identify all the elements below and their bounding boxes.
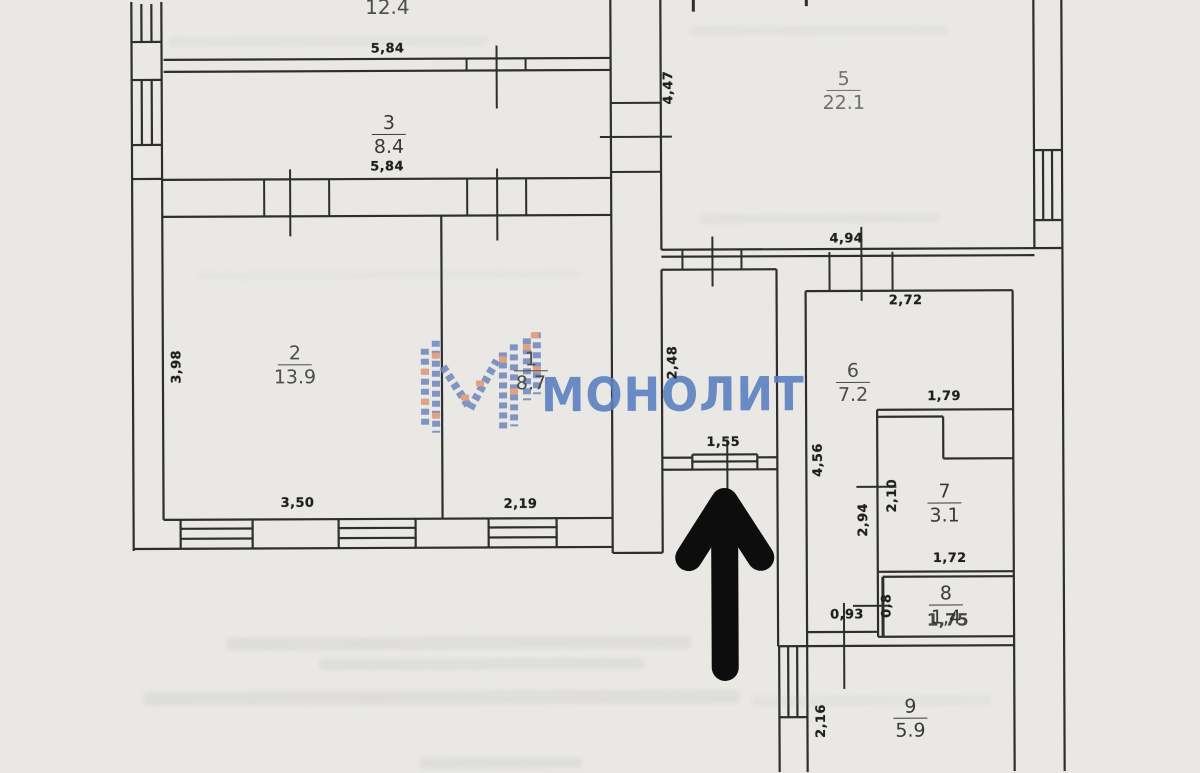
plan-canvas: МОНОЛИТ 12.4 3 8.4 5 22.1 2 13.9 1 8.7 6… [0, 0, 1200, 773]
room-label-5: 5 22.1 [822, 69, 865, 113]
dim-label: 4,56 [811, 443, 826, 477]
dim-label: 2,10 [885, 479, 900, 513]
room-number: 5 [827, 69, 861, 91]
room-area: 12.4 [365, 0, 410, 18]
room-number: 3 [372, 113, 406, 135]
room-number: 6 [836, 361, 870, 383]
room-label-3: 3 8.4 [372, 113, 406, 157]
room-label-2: 2 13.9 [274, 343, 317, 387]
dim-label: 1,72 [933, 551, 967, 566]
room-label-7: 7 3.1 [927, 481, 961, 525]
room-area: 8.4 [372, 135, 406, 157]
room-area: 5.9 [893, 719, 927, 741]
dim-label: 4,94 [829, 231, 863, 246]
floor-plan-scan: МОНОЛИТ 12.4 3 8.4 5 22.1 2 13.9 1 8.7 6… [0, 0, 1200, 773]
room-number: 8 [929, 583, 963, 605]
room-label-12: 12.4 [365, 0, 410, 18]
room-label-1: 1 8.7 [514, 349, 548, 393]
dim-label: 1,79 [927, 389, 961, 404]
dim-label: 2,72 [889, 293, 923, 308]
dim-label: 1,55 [706, 435, 740, 450]
dim-label: 5,84 [370, 159, 404, 174]
dim-label: 2,19 [504, 497, 538, 512]
dim-label: 2,16 [814, 704, 829, 738]
dim-label: 4,47 [661, 71, 676, 105]
dim-label: 2,94 [856, 503, 871, 537]
dim-label: 3,98 [169, 350, 184, 384]
room-area: 7.2 [836, 383, 870, 405]
dim-label: 2,48 [665, 346, 680, 380]
room-area: 13.9 [274, 365, 316, 387]
room-number: 7 [927, 481, 961, 503]
room-area: 3.1 [927, 504, 961, 526]
room-area: 8.7 [514, 371, 548, 393]
room-area: 22.1 [823, 91, 865, 113]
room-label-6: 6 7.2 [836, 361, 870, 405]
dim-label: 0,93 [830, 607, 864, 622]
dim-label: 0,8 [879, 594, 894, 618]
entrance-arrow-icon [689, 501, 762, 667]
room-number: 2 [278, 343, 312, 365]
room-width-dim: 1,75 [927, 612, 969, 630]
door-marks [263, 0, 897, 691]
dim-label: 3,50 [281, 496, 315, 511]
room-label-8: 8 1,4 1,75 [929, 583, 963, 627]
room-number: 1 [514, 349, 548, 371]
